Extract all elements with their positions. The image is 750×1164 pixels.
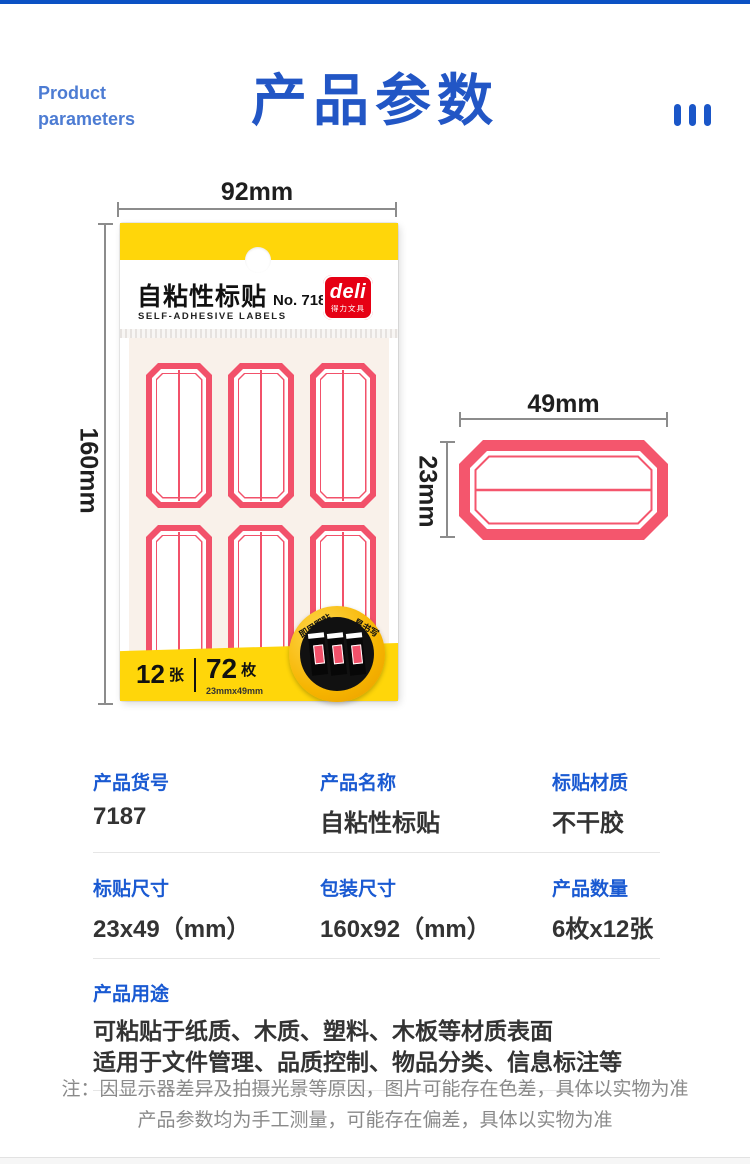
spec-label: 产品名称 bbox=[320, 768, 552, 795]
spec-value: 160x92（mm） bbox=[320, 909, 552, 944]
count-divider bbox=[194, 658, 196, 692]
spec-cell: 标贴材质 不干胶 bbox=[552, 768, 660, 838]
spec-value: 不干胶 bbox=[552, 803, 660, 838]
package-width-measure-line bbox=[117, 208, 397, 210]
package-count-block: 12 张 72 枚 23mmx49mm bbox=[136, 653, 263, 696]
package-height-dim: 160mm bbox=[74, 428, 103, 508]
piece-size-spec: 23mmx49mm bbox=[206, 686, 263, 696]
spec-label: 包装尺寸 bbox=[320, 874, 552, 901]
spec-value: 自粘性标贴 bbox=[320, 803, 552, 838]
spec-label: 标贴材质 bbox=[552, 768, 660, 795]
spec-cell: 包装尺寸 160x92（mm） bbox=[320, 874, 552, 944]
package-product-name-en: SELF-ADHESIVE LABELS bbox=[138, 311, 287, 322]
sheet-count: 12 bbox=[136, 659, 165, 690]
deli-logo-text: deli bbox=[323, 282, 373, 302]
spec-cell: 产品货号 7187 bbox=[93, 768, 320, 838]
label-sticker bbox=[146, 525, 212, 670]
product-package-image: 自粘性标贴No. 7187 SELF-ADHESIVE LABELS deli … bbox=[120, 223, 398, 701]
binder-icon bbox=[327, 632, 347, 675]
spec-usage-row: 产品用途 可粘贴于纸质、木质、塑料、木板等材质表面 适用于文件管理、品质控制、物… bbox=[93, 959, 660, 1091]
spec-value: 7187 bbox=[93, 803, 320, 831]
label-sticker bbox=[228, 363, 294, 508]
spec-cell: 产品数量 6枚x12张 bbox=[552, 874, 660, 944]
deli-logo: deli 得力文具 bbox=[323, 275, 373, 320]
spec-row-2: 标贴尺寸 23x49（mm） 包装尺寸 160x92（mm） 产品数量 6枚x1… bbox=[93, 853, 660, 959]
package-product-name: 自粘性标贴 bbox=[137, 283, 267, 311]
deli-logo-chinese: 得力文具 bbox=[323, 305, 373, 313]
package-width-dim: 92mm bbox=[117, 178, 397, 207]
label-height-measure-line bbox=[446, 441, 448, 538]
spec-value: 6枚x12张 bbox=[552, 909, 660, 944]
page-title: 产品参数 bbox=[0, 56, 750, 137]
single-label-image bbox=[459, 440, 668, 540]
usage-label: 产品用途 bbox=[93, 979, 660, 1006]
label-width-measure-line bbox=[459, 418, 668, 420]
piece-count-unit: 枚 bbox=[241, 659, 256, 680]
binder-icon bbox=[346, 632, 366, 675]
usage-line1: 可粘贴于纸质、木质、塑料、木板等材质表面 bbox=[93, 1016, 660, 1047]
spec-table: 产品货号 7187 产品名称 自粘性标贴 标贴材质 不干胶 标贴尺寸 23x49… bbox=[93, 755, 660, 1091]
badge-binders-image bbox=[300, 617, 374, 691]
top-accent-bar bbox=[0, 0, 750, 4]
label-sticker bbox=[146, 363, 212, 508]
spec-label: 产品货号 bbox=[93, 768, 320, 795]
spec-label: 产品数量 bbox=[552, 874, 660, 901]
three-bars-decor-icon bbox=[674, 104, 711, 126]
spec-value: 23x49（mm） bbox=[93, 909, 320, 944]
package-height-measure-line bbox=[104, 223, 106, 705]
bottom-section-divider bbox=[0, 1157, 750, 1164]
label-width-dim: 49mm bbox=[459, 390, 668, 419]
disclaimer-note: 注：因显示器差异及拍摄光景等原因，图片可能存在色差，具体以实物为准 产品参数均为… bbox=[0, 1074, 750, 1136]
package-seal-strip bbox=[120, 329, 398, 338]
feature-badge: 即用即贴 易书写 bbox=[289, 606, 385, 702]
label-sticker bbox=[310, 363, 376, 508]
disclaimer-line1: 注：因显示器差异及拍摄光景等原因，图片可能存在色差，具体以实物为准 bbox=[0, 1074, 750, 1105]
binder-icon bbox=[308, 632, 328, 675]
sheet-count-unit: 张 bbox=[169, 664, 184, 685]
piece-count: 72 bbox=[206, 653, 237, 685]
spec-cell: 标贴尺寸 23x49（mm） bbox=[93, 874, 320, 944]
disclaimer-line2: 产品参数均为手工测量，可能存在偏差，具体以实物为准 bbox=[0, 1105, 750, 1136]
package-title-row: 自粘性标贴No. 7187 bbox=[137, 277, 335, 313]
spec-row-1: 产品货号 7187 产品名称 自粘性标贴 标贴材质 不干胶 bbox=[93, 755, 660, 853]
spec-label: 标贴尺寸 bbox=[93, 874, 320, 901]
spec-cell: 产品名称 自粘性标贴 bbox=[320, 768, 552, 838]
package-hang-hole bbox=[245, 247, 271, 273]
product-parameters-page: Product parameters 产品参数 92mm 160mm 自粘性标贴… bbox=[0, 0, 750, 1164]
label-height-dim: 23mm bbox=[413, 452, 442, 532]
